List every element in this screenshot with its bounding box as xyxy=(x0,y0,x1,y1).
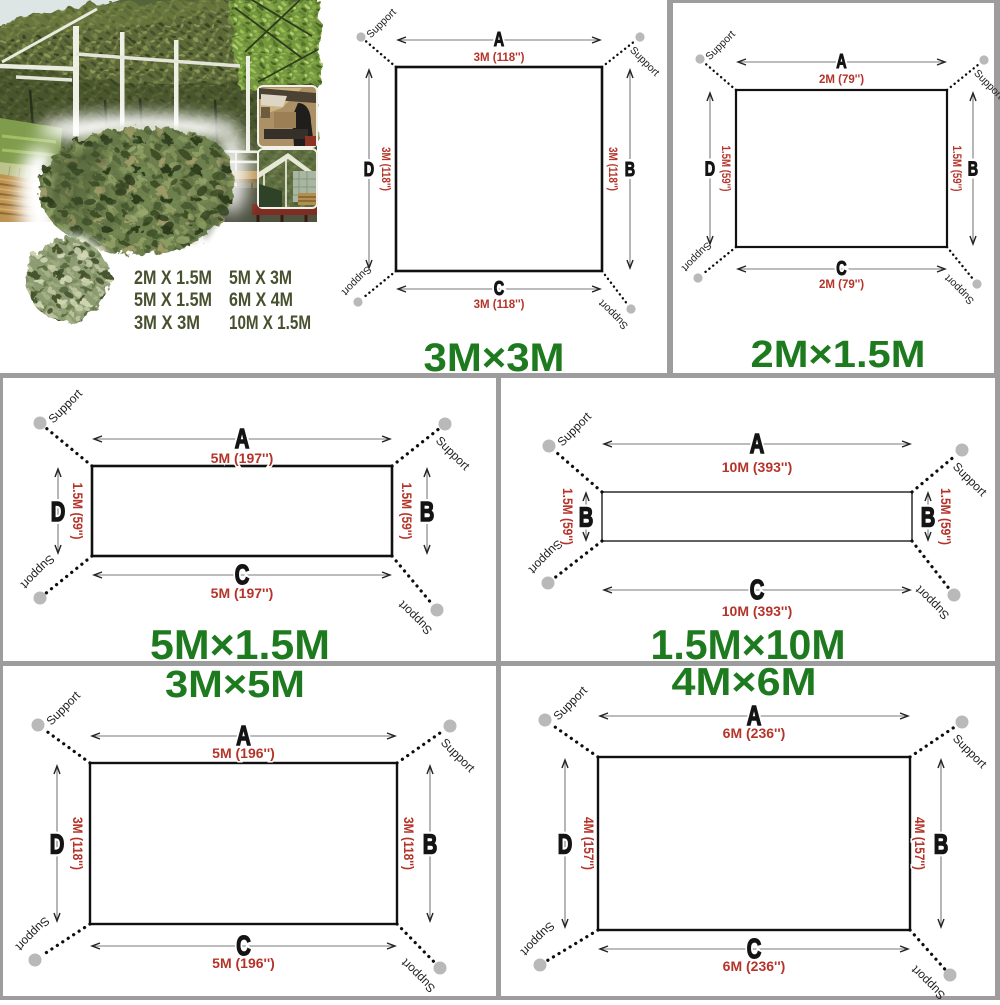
svg-text:C: C xyxy=(494,277,505,300)
svg-text:3M×3M: 3M×3M xyxy=(424,336,565,380)
svg-text:4M×6M: 4M×6M xyxy=(672,661,817,704)
svg-text:6M (236''): 6M (236'') xyxy=(723,725,786,741)
svg-text:5M (196''): 5M (196'') xyxy=(212,745,275,761)
svg-text:2M X 1.5M: 2M X 1.5M xyxy=(134,267,212,289)
svg-text:1.5M (59''): 1.5M (59'') xyxy=(560,488,576,545)
svg-text:4M (157''): 4M (157'') xyxy=(912,817,928,870)
svg-text:A: A xyxy=(836,50,847,73)
svg-text:1.5M (59''): 1.5M (59'') xyxy=(719,146,731,192)
svg-text:1.5M (59''): 1.5M (59'') xyxy=(950,146,962,192)
svg-text:3M (118''): 3M (118'') xyxy=(379,147,391,191)
svg-text:1.5M (59''): 1.5M (59'') xyxy=(399,483,415,540)
svg-text:2M (79''): 2M (79'') xyxy=(819,279,864,291)
svg-text:5M X 1.5M: 5M X 1.5M xyxy=(134,289,212,311)
svg-text:10M (393''): 10M (393'') xyxy=(722,603,792,619)
svg-text:2M (79''): 2M (79'') xyxy=(819,74,864,86)
svg-text:D: D xyxy=(364,158,374,181)
svg-text:B: B xyxy=(420,497,435,528)
svg-text:3M (118''): 3M (118'') xyxy=(474,299,525,311)
svg-text:3M (118''): 3M (118'') xyxy=(70,817,86,870)
svg-text:5M (197''): 5M (197'') xyxy=(211,585,274,601)
svg-text:B: B xyxy=(423,829,438,860)
svg-text:3M×5M: 3M×5M xyxy=(165,664,305,706)
svg-text:6M X 4M: 6M X 4M xyxy=(229,289,293,311)
svg-text:3M (118''): 3M (118'') xyxy=(606,147,618,191)
svg-text:10M (393''): 10M (393'') xyxy=(722,459,792,475)
svg-text:C: C xyxy=(750,575,765,606)
svg-text:3M X 3M: 3M X 3M xyxy=(134,312,200,334)
svg-text:B: B xyxy=(921,502,936,533)
svg-text:B: B xyxy=(625,158,635,181)
svg-text:B: B xyxy=(968,157,978,180)
svg-text:5M X 3M: 5M X 3M xyxy=(229,267,292,289)
svg-text:D: D xyxy=(51,497,66,528)
svg-text:5M (196''): 5M (196'') xyxy=(212,955,275,971)
svg-text:5M (197''): 5M (197'') xyxy=(211,450,274,466)
svg-text:C: C xyxy=(836,257,847,280)
svg-text:1.5M (59''): 1.5M (59'') xyxy=(938,488,954,545)
svg-text:6M (236''): 6M (236'') xyxy=(723,958,786,974)
svg-text:A: A xyxy=(494,28,505,51)
svg-text:5M×1.5M: 5M×1.5M xyxy=(150,621,330,668)
svg-text:B: B xyxy=(579,502,594,533)
svg-text:3M (118''): 3M (118'') xyxy=(474,52,525,64)
svg-text:10M X 1.5M: 10M X 1.5M xyxy=(229,312,311,334)
svg-text:A: A xyxy=(750,429,765,460)
svg-text:2M×1.5M: 2M×1.5M xyxy=(751,334,926,376)
svg-text:D: D xyxy=(558,829,573,860)
svg-text:4M (157''): 4M (157'') xyxy=(581,817,597,870)
svg-text:B: B xyxy=(934,829,949,860)
svg-text:1.5M (59''): 1.5M (59'') xyxy=(70,483,86,540)
svg-text:D: D xyxy=(705,157,715,180)
svg-text:D: D xyxy=(50,829,65,860)
svg-text:3M (118''): 3M (118'') xyxy=(401,817,417,870)
